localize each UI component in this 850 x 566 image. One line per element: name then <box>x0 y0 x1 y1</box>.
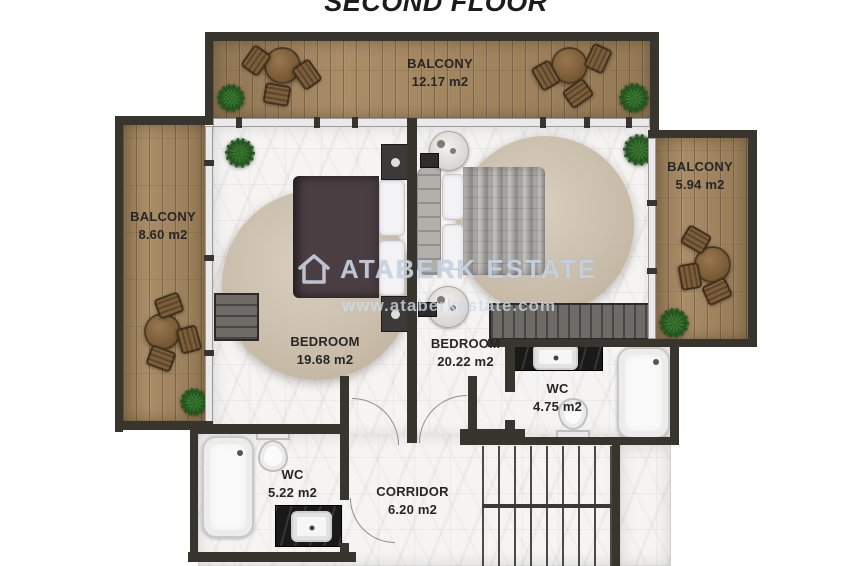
wall <box>198 424 344 434</box>
room-area: 8.60 m2 <box>113 226 213 244</box>
window-post <box>584 117 590 128</box>
faucet-icon <box>237 450 243 456</box>
watermark: ATABERK ESTATE <box>296 252 597 286</box>
room-label-bedroom-right: BEDROOM 20.22 m2 <box>388 335 543 371</box>
room-label-balcony-top: BALCONY 12.17 m2 <box>360 55 520 91</box>
room-name: WC <box>240 466 345 484</box>
room-label-corridor: CORRIDOR 6.20 m2 <box>335 483 490 519</box>
watermark-brand: ATABERK ESTATE <box>340 254 597 285</box>
room-area: 5.94 m2 <box>645 176 755 194</box>
wall <box>190 424 198 562</box>
room-name: CORRIDOR <box>335 483 490 501</box>
room-name: BALCONY <box>113 208 213 226</box>
wall <box>205 32 659 41</box>
window-post <box>626 117 632 128</box>
plant-icon <box>217 84 245 112</box>
plant-icon <box>619 83 649 113</box>
floor-plan: SECOND FLOOR <box>0 0 850 566</box>
wall <box>115 116 213 125</box>
faucet-icon <box>653 359 659 365</box>
room-name: BEDROOM <box>245 333 405 351</box>
room-label-bedroom-left: BEDROOM 19.68 m2 <box>245 333 405 369</box>
pillow <box>379 180 405 236</box>
wall <box>205 32 213 122</box>
wall <box>670 339 679 443</box>
floor-stair-landing <box>620 445 671 566</box>
nightstand-icon <box>381 144 409 180</box>
watermark-url: www.ataberkestate.com <box>342 296 556 316</box>
wall <box>648 130 757 138</box>
stairs <box>482 446 612 566</box>
plant-icon <box>180 388 208 416</box>
room-area: 19.68 m2 <box>245 351 405 369</box>
pillow <box>442 174 464 220</box>
room-name: BEDROOM <box>388 335 543 353</box>
room-area: 5.22 m2 <box>240 484 345 502</box>
chair-icon <box>262 82 291 107</box>
window-post <box>204 350 214 356</box>
stairs-landing-divider <box>482 504 612 508</box>
chair-icon <box>677 262 702 291</box>
plant-icon <box>659 308 689 338</box>
wall <box>460 429 525 445</box>
wall <box>115 116 123 432</box>
window-post <box>647 200 657 206</box>
wall <box>612 445 620 566</box>
room-area: 12.17 m2 <box>360 73 520 91</box>
plant-icon <box>225 138 255 168</box>
tap-icon <box>309 525 314 530</box>
room-area: 6.20 m2 <box>335 501 490 519</box>
window-post <box>204 255 214 261</box>
window-post <box>647 268 657 274</box>
wall <box>650 32 659 136</box>
bathtub-icon <box>617 347 670 439</box>
window-post <box>352 117 358 128</box>
wall <box>512 437 679 445</box>
floor-balcony-left <box>123 125 205 421</box>
brand-home-icon <box>296 252 332 286</box>
decor-frame-icon <box>420 153 439 168</box>
window-post <box>540 117 546 128</box>
room-label-wc-left: WC 5.22 m2 <box>240 466 345 502</box>
room-label-balcony-left: BALCONY 8.60 m2 <box>113 208 213 244</box>
room-name: BALCONY <box>645 158 755 176</box>
window-post <box>314 117 320 128</box>
room-area: 4.75 m2 <box>505 398 610 416</box>
window <box>205 126 213 424</box>
tap-icon <box>553 356 558 361</box>
wall <box>340 376 349 445</box>
page-title: SECOND FLOOR <box>115 0 757 18</box>
window-post <box>204 160 214 166</box>
room-name: WC <box>505 380 610 398</box>
sink-icon <box>291 511 332 542</box>
wall <box>340 543 349 562</box>
window-post <box>236 117 242 128</box>
room-label-wc-right: WC 4.75 m2 <box>505 380 610 416</box>
wall <box>188 552 356 562</box>
room-name: BALCONY <box>360 55 520 73</box>
wall <box>505 420 515 437</box>
room-label-balcony-right: BALCONY 5.94 m2 <box>645 158 755 194</box>
room-area: 20.22 m2 <box>388 353 543 371</box>
